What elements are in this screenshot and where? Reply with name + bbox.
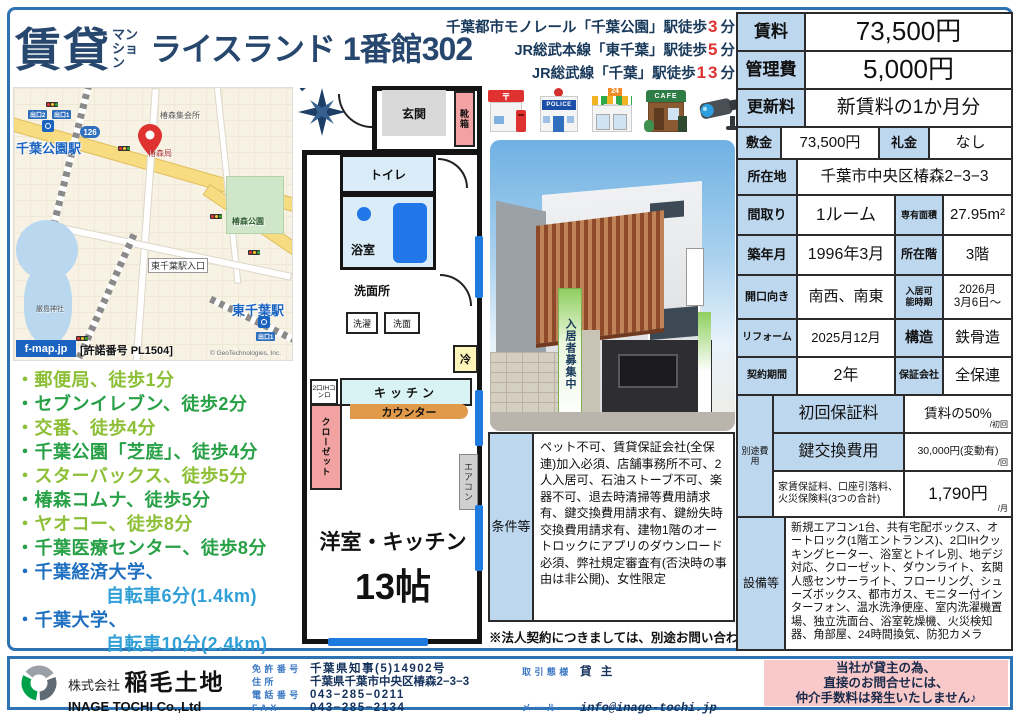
access-unit: 分 <box>721 43 736 59</box>
phone-value: 043−285−0211 <box>310 689 405 701</box>
plan-shoebox: 靴箱 <box>454 91 475 147</box>
term-value: 2年 <box>796 356 896 396</box>
deal-type-value: 貸主 <box>580 666 621 678</box>
listing-category-sub: マンション <box>112 28 142 70</box>
layout-value: 1ルーム <box>796 194 896 236</box>
mgmt-fee-label: 管理費 <box>736 50 806 90</box>
facility-item: ・千葉経済大学、 <box>16 558 164 584</box>
plan-window <box>475 390 483 446</box>
recruiting-banner-right <box>698 312 711 412</box>
plan-kitchen: キッチン <box>340 378 472 406</box>
fax-label: FAX <box>252 702 310 714</box>
fax-value: 043−285−2134 <box>310 702 405 714</box>
key-exchange-text: 30,000円(変動有) <box>917 446 998 458</box>
access-text: JR総武本線「東千葉」駅徒歩 <box>514 43 707 59</box>
traffic-signal-icon <box>210 214 222 219</box>
address-label: 所在地 <box>736 158 798 196</box>
structure-value: 鉄骨造 <box>942 318 1013 358</box>
plan-bath-label: 浴室 <box>351 241 375 258</box>
owner-notice-line2: 直接のお問合せには、 <box>823 676 948 691</box>
reform-label: リフォーム <box>736 318 798 358</box>
area-value: 27.95m² <box>942 194 1013 236</box>
map-hall-label: 椿森集会所 <box>160 110 200 121</box>
post-office-window <box>494 116 504 124</box>
structure-label: 構造 <box>894 318 944 358</box>
company-name: 稲毛土地 <box>124 670 224 695</box>
map-park-label: 椿森公園 <box>232 216 264 227</box>
renewal-label: 更新料 <box>736 88 806 128</box>
reform-value: 2025月12月 <box>796 318 896 358</box>
exit-badge: 出口1 <box>256 332 275 341</box>
cafe-bush <box>644 120 654 132</box>
built-label: 築年月 <box>736 234 798 276</box>
access-minutes: 13 <box>696 63 721 82</box>
guarantee-fee-unit: /初回 <box>990 421 1008 430</box>
deposit-label: 敷金 <box>736 126 782 160</box>
police-window <box>567 116 574 123</box>
deal-block: 取引態様貸主 メールinfo@inage-tochi.jp <box>522 662 757 716</box>
access-unit: 分 <box>721 20 736 36</box>
police-window <box>543 116 550 123</box>
owner-notice-line1: 当社が貸主の為、 <box>836 661 936 676</box>
plan-window <box>328 638 428 646</box>
plan-fridge: 冷 <box>453 345 478 373</box>
access-unit: 分 <box>721 66 736 82</box>
plan-stove: 2口IHコンロ <box>310 379 338 405</box>
key-exchange-value: 30,000円(変動有)/回 <box>903 432 1013 472</box>
guarantor-label: 保証会社 <box>894 356 944 396</box>
facility-item-detail: 自転車6分(1.4km) <box>106 582 257 608</box>
movein-value-line1: 2026月 <box>959 284 996 297</box>
cafe-awning: CAFE <box>646 90 686 102</box>
company-prefix: 株式会社 <box>68 678 120 693</box>
company-block: 株式会社 稲毛土地 INAGE TOCHI Co.,Ltd <box>68 663 248 714</box>
access-text: 千葉都市モノレール「千葉公園」駅徒歩 <box>446 20 707 36</box>
map-crossing-label: 東千葉駅入口 <box>148 258 208 273</box>
address-label: 住所 <box>252 676 310 688</box>
facing-label: 開口向き <box>736 274 798 320</box>
key-money-label: 礼金 <box>878 126 930 160</box>
map-copyright: © GeoTechnologies, Inc. <box>210 350 281 357</box>
address-value: 千葉市中央区椿森2−3−3 <box>796 158 1013 196</box>
key-money-value: なし <box>928 126 1013 160</box>
access-minutes: 3 <box>707 17 720 36</box>
deposit-value: 73,500円 <box>780 126 880 160</box>
conditions-text: ペット不可、賃貸保証会社(全保連)加入必須、店舗事務所不可、2人入居可、石油スト… <box>532 432 735 622</box>
insurance-bundle-label: 家賃保証料、口座引落料、火災保険料(3つの合計) <box>772 470 905 518</box>
route-badge: 126 <box>80 126 100 138</box>
phone-label: 電話番号 <box>252 689 310 701</box>
plan-bath-drain <box>357 207 371 221</box>
access-line: JR総武線「千葉」駅徒歩13分 <box>440 62 735 85</box>
photo-wood-slat-screen <box>536 210 664 348</box>
recruiting-banner: 入居者募集中 <box>558 288 582 420</box>
license-value: 千葉県知事(5)14902号 <box>310 663 446 675</box>
facility-item: ・ヤオコー、徒歩8分 <box>16 510 193 536</box>
facility-item: ・椿森コムナ、徒歩5分 <box>16 486 211 512</box>
facility-item-detail: 自転車10分(2.4km) <box>106 630 268 656</box>
plan-basin: 洗面 <box>384 312 420 334</box>
guarantee-fee-value: 賃料の50%/初回 <box>903 394 1013 434</box>
rent-label: 賃料 <box>736 12 806 52</box>
traffic-signal-icon <box>118 146 130 151</box>
store-door <box>596 114 610 130</box>
insurance-bundle-unit: /月 <box>998 505 1008 514</box>
renewal-value: 新賃料の1か月分 <box>804 88 1013 128</box>
plan-aircon: エアコン <box>459 454 478 510</box>
facility-item: ・交番、徒歩4分 <box>16 414 156 440</box>
movein-value: 2026月 3月6日〜 <box>942 274 1013 320</box>
photo-road <box>490 412 735 431</box>
guarantee-fee-label: 初回保証料 <box>772 394 905 434</box>
plan-entrance: 玄関 <box>382 90 446 136</box>
access-block: 千葉都市モノレール「千葉公園」駅徒歩3分 JR総武本線「東千葉」駅徒歩5分 JR… <box>440 16 735 85</box>
map-brand-badge: f-map.jp <box>16 340 76 357</box>
map-station-label: 千葉公園駅 <box>16 138 81 157</box>
cafe-door <box>654 108 664 130</box>
area-label: 専有面積 <box>894 194 944 236</box>
exit-badge: 出口2 <box>28 110 47 119</box>
movein-label-text: 入居可能時期 <box>903 286 935 308</box>
station-icon <box>42 120 54 132</box>
mail-label: メール <box>522 701 580 714</box>
cafe-icon: CAFE <box>644 88 688 138</box>
floor-value: 3階 <box>942 234 1013 276</box>
key-exchange-unit: /回 <box>998 459 1008 468</box>
map-shrine-label: 厳島神社 <box>36 304 64 314</box>
traffic-signal-icon <box>76 336 88 341</box>
key-exchange-label: 鍵交換費用 <box>772 432 905 472</box>
post-mark: 〒 <box>488 90 524 102</box>
police-door <box>553 116 564 132</box>
conditions-box: 条件等 ペット不可、賃貸保証会社(全保連)加入必須、店舗事務所不可、2人入居可、… <box>488 432 735 622</box>
facing-value: 南西、南東 <box>796 274 896 320</box>
access-line: JR総武本線「東千葉」駅徒歩5分 <box>440 39 735 62</box>
plan-closet: クローゼット <box>310 404 342 490</box>
facility-item: ・千葉医療センター、徒歩8分 <box>16 534 267 560</box>
spec-table: 賃料 73,500円 管理費 5,000円 更新料 新賃料の1か月分 敷金 73… <box>736 12 1013 651</box>
movein-value-line2: 3月6日〜 <box>954 297 1001 310</box>
movein-label: 入居可能時期 <box>894 274 944 320</box>
license-block: 免許番号千葉県知事(5)14902号 住所千葉県千葉市中央区椿森2−3−3 電話… <box>252 662 514 714</box>
owner-notice: 当社が貸主の為、 直接のお問合せには、 仲介手数料は発生いたしません♪ <box>764 660 1008 706</box>
photo-entrance-sign <box>618 354 678 388</box>
license-label: 免許番号 <box>252 663 310 675</box>
extra-fees-label: 別途費用 <box>736 394 774 518</box>
equipment-label: 設備等 <box>736 516 786 651</box>
plan-room-size: 13帖 <box>302 558 484 610</box>
facility-item: ・スターバックス、徒歩5分 <box>16 462 248 488</box>
access-line: 千葉都市モノレール「千葉公園」駅徒歩3分 <box>440 16 735 39</box>
built-value: 1996年3月 <box>796 234 896 276</box>
plan-washer: 洗濯 <box>346 312 378 334</box>
plan-bathtub <box>393 203 427 263</box>
post-office-icon: 〒 <box>486 88 530 138</box>
building-photo: 入居者募集中 <box>490 140 735 431</box>
access-minutes: 5 <box>707 40 720 59</box>
plan-bathroom: 浴室 <box>340 194 436 270</box>
plan-window <box>475 236 483 298</box>
plan-washroom-label: 洗面所 <box>354 282 390 299</box>
postbox-slot <box>518 114 524 116</box>
mail-value: info@inage-tochi.jp <box>580 701 717 715</box>
facility-item: ・郵便局、徒歩1分 <box>16 366 175 392</box>
owner-notice-line3: 仲介手数料は発生いたしません♪ <box>796 691 977 706</box>
area-map: 出口2 出口1 千葉公園駅 椿森集会所 椿森局 126 椿森公園 東千葉駅入口 … <box>14 88 292 360</box>
mgmt-fee-value: 5,000円 <box>804 50 1013 90</box>
deal-type-label: 取引態様 <box>522 665 580 678</box>
police-sign: POLICE <box>542 100 576 110</box>
layout-label: 間取り <box>736 194 798 236</box>
police-station-icon: POLICE <box>538 88 582 138</box>
company-name-en: INAGE TOCHI Co.,Ltd <box>68 699 248 714</box>
facility-item: ・千葉公園「芝庭」、徒歩4分 <box>16 438 258 464</box>
store-door <box>613 114 627 130</box>
traffic-signal-icon <box>46 102 58 107</box>
plan-toilet: トイレ <box>340 154 436 194</box>
photo-company-signboard <box>686 248 704 306</box>
floor-plan: 玄関 靴箱 トイレ 浴室 洗面所 洗濯 洗面 冷 2口IHコンロ キッチン カウ… <box>298 86 488 650</box>
facility-item: ・千葉大学、 <box>16 606 127 632</box>
guarantee-fee-text: 賃料の50% <box>924 406 992 421</box>
facility-item: ・セブンイレブン、徒歩2分 <box>16 390 247 416</box>
plan-window <box>475 505 483 571</box>
convenience-store-icon: 24 24 <box>590 88 634 138</box>
map-license: [許諾番号 PL1504] <box>80 342 173 358</box>
term-label: 契約期間 <box>736 356 798 396</box>
insurance-bundle-value: 1,790円/月 <box>903 470 1013 518</box>
address-value: 千葉県千葉市中央区椿森2−3−3 <box>310 676 469 688</box>
rent-value: 73,500円 <box>804 12 1013 52</box>
map-post-label: 椿森局 <box>148 148 172 159</box>
station-icon <box>258 316 270 328</box>
property-name: ライスランド 1番館302 <box>150 24 472 70</box>
plan-counter: カウンター <box>350 404 468 419</box>
floor-label: 所在階 <box>894 234 944 276</box>
guarantor-value: 全保連 <box>942 356 1013 396</box>
insurance-bundle-text: 1,790円 <box>928 484 988 503</box>
exit-badge: 出口1 <box>52 110 71 119</box>
traffic-signal-icon <box>248 250 260 255</box>
cafe-board <box>678 116 687 132</box>
company-logo-icon <box>18 662 60 704</box>
conditions-label: 条件等 <box>488 432 534 622</box>
equipment-text: 新規エアコン1台、共有宅配ボックス、オートロック(1階エントランス)、2口IHク… <box>784 516 1013 651</box>
listing-category: 賃貸 <box>15 14 111 80</box>
access-text: JR総武線「千葉」駅徒歩 <box>532 66 696 82</box>
plan-room-label: 洋室・キッチン <box>302 526 484 556</box>
